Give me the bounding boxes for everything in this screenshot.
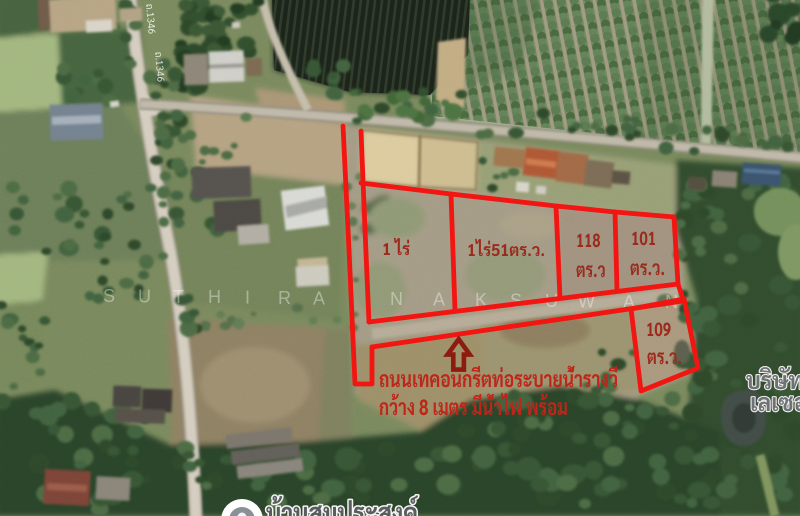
svg-text:A: A [433, 290, 445, 310]
svg-text:A: A [313, 288, 325, 308]
svg-text:S: S [510, 291, 522, 311]
svg-text:I: I [245, 288, 250, 308]
svg-text:R: R [278, 288, 291, 308]
svg-text:U: U [138, 286, 151, 306]
svg-text:H: H [208, 287, 221, 307]
svg-text:S: S [103, 286, 115, 306]
svg-text:T: T [173, 287, 184, 307]
svg-text:N: N [390, 289, 403, 309]
